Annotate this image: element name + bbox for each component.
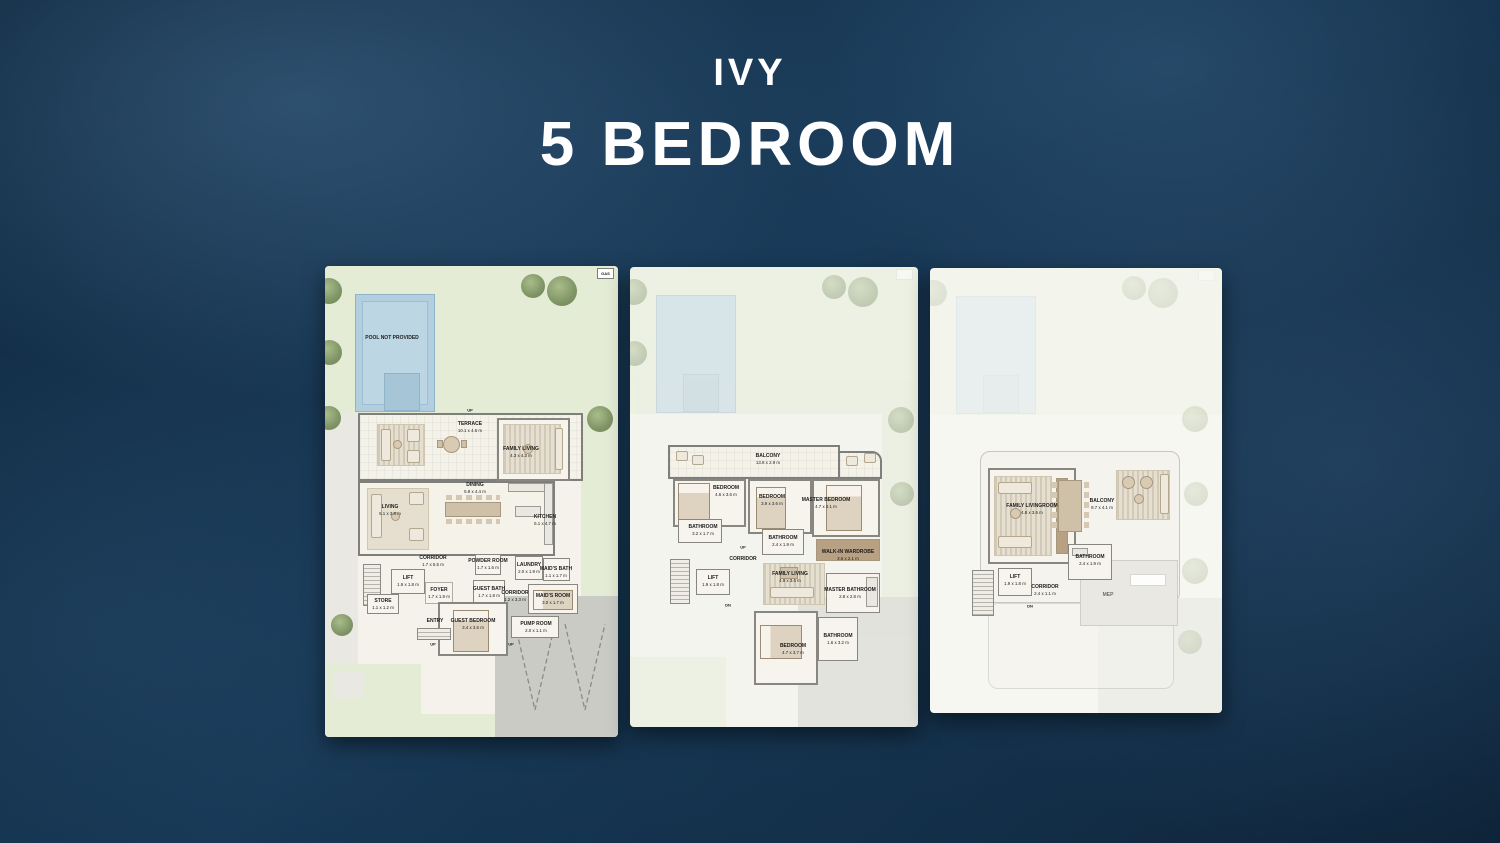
room-label-bedroom4: BEDROOM4.7 x 3.7 m	[780, 643, 806, 655]
room-label-balcony: BALCONY8.7 x 4.1 m	[1090, 498, 1115, 510]
roof-hatch	[1130, 574, 1166, 586]
room-label-maids-room: MAID'S ROOM3.0 x 1.7 m	[536, 593, 570, 605]
room-label-maids-bath: MAID'S BATH1.1 x 1.7 m	[540, 566, 572, 578]
dining-chairs-icon	[1084, 482, 1089, 530]
swimming-pool	[656, 295, 736, 413]
coffee-table-icon	[1134, 494, 1144, 504]
room-label-corridor: CORRIDOR2.4 x 1.1 m	[1031, 584, 1058, 596]
dining-chairs-icon	[446, 495, 500, 500]
gas-meter-box: GAS	[597, 268, 614, 279]
first-floor-plan: BALCONY13.8 x 2.9 m BEDROOM4.6 x 3.6 m B…	[630, 267, 918, 727]
terrace-table-icon	[443, 436, 460, 453]
tree-icon	[822, 275, 846, 299]
pool-steps	[983, 375, 1019, 413]
coffee-table-icon	[393, 440, 402, 449]
staircase	[972, 570, 994, 616]
sofa-icon	[998, 536, 1032, 548]
room-label-bathroom4: BATHROOM1.6 x 3.2 m	[823, 633, 852, 645]
tree-icon	[888, 407, 914, 433]
header: IVY 5 BEDROOM	[0, 0, 1500, 180]
room-label-powder-room: POWDER ROOM1.7 x 1.6 m	[468, 558, 507, 570]
project-title: IVY	[0, 52, 1500, 95]
room-label-corridor: CORRIDOR1.7 x 5.5 m	[419, 555, 446, 567]
room-label-mep: MEP	[1103, 592, 1114, 599]
entry-steps	[417, 628, 451, 640]
tree-icon	[1148, 278, 1178, 308]
sofa-icon	[770, 587, 814, 598]
room-label-walkin-wardrobe: WALK-IN WARDROBE3.6 x 2.1 m	[822, 549, 875, 561]
roof-floor-plan: FAMILY LIVINGROOM4.8 x 3.6 m BALCONY8.7 …	[930, 268, 1222, 713]
room-label-bathroom3: BATHROOM2.4 x 1.9 m	[768, 535, 797, 547]
room-label-lift: LIFT1.9 x 1.8 m	[702, 575, 724, 587]
gas-meter-box	[1198, 270, 1215, 281]
room-label-family-living: FAMILY LIVING4.9 x 3.6 m	[772, 571, 808, 583]
dn-marker: DN	[1027, 603, 1033, 608]
room-label-store: STORE1.1 x 1.2 m	[372, 598, 394, 610]
room-label-kitchen: KITCHEN5.1 x 4.7 m	[534, 514, 556, 526]
outdoor-sofa-icon	[381, 429, 391, 461]
garden-front-strip	[421, 714, 497, 737]
dining-table-icon	[1058, 480, 1082, 532]
garden-side-strip	[882, 414, 918, 599]
swimming-pool	[355, 294, 435, 412]
ground-floor-plan: POOL NOT PROVIDED GAS	[325, 266, 618, 737]
dining-chairs-icon	[446, 519, 500, 524]
paving-slab	[333, 672, 363, 698]
balcony-chair-icon	[676, 451, 688, 461]
pool-steps	[683, 374, 719, 412]
pool-steps	[384, 373, 420, 411]
room-label-terrace: TERRACE10.1 x 4.5 m	[458, 421, 482, 433]
bed-icon	[453, 610, 489, 652]
garden-front-left	[630, 657, 726, 727]
lounge-chair-icon	[1140, 476, 1153, 489]
tree-icon	[521, 274, 545, 298]
bed-icon	[678, 483, 710, 523]
up-marker: UP	[467, 407, 473, 412]
room-label-master-bathroom: MASTER BATHROOM2.8 x 2.8 m	[824, 587, 876, 599]
up-marker: UP	[740, 544, 746, 549]
tree-icon	[890, 482, 914, 506]
swimming-pool	[956, 296, 1036, 414]
room-label-family-livingroom: FAMILY LIVINGROOM4.8 x 3.6 m	[1006, 503, 1057, 515]
room-label-entry: ENTRY	[427, 618, 444, 625]
outdoor-chair-icon	[407, 450, 420, 463]
balcony-chair-icon	[864, 453, 876, 463]
tree-icon	[1122, 276, 1146, 300]
room-label-lift: LIFT1.9 x 1.8 m	[397, 575, 419, 587]
room-label-pump-room: PUMP ROOM2.0 x 1.1 m	[520, 621, 551, 633]
dining-table-icon	[445, 502, 501, 517]
gas-meter-box	[896, 269, 913, 280]
room-label-laundry: LAUNDRY2.0 x 1.9 m	[517, 562, 541, 574]
staircase	[670, 559, 690, 604]
dn-marker: DN	[725, 602, 731, 607]
balcony-chair-icon	[846, 456, 858, 466]
tree-icon	[587, 406, 613, 432]
room-label-bedroom2: BEDROOM4.6 x 3.6 m	[713, 485, 739, 497]
armchair-icon	[409, 528, 424, 541]
room-label-foyer: FOYER1.7 x 1.9 m	[428, 587, 450, 599]
room-label-guest-bath: GUEST BATH1.7 x 1.8 m	[473, 586, 505, 598]
tree-icon	[1184, 482, 1208, 506]
brochure-slide: IVY 5 BEDROOM POOL NOT PROVIDED	[0, 0, 1500, 843]
pool-label: POOL NOT PROVIDED	[365, 335, 419, 342]
room-label-corridor: CORRIDOR	[729, 556, 756, 563]
sofa-icon	[998, 482, 1032, 494]
room-label-lift: LIFT1.9 x 1.8 m	[1004, 574, 1026, 586]
room-label-dining: DINING5.9 x 4.4 m	[464, 482, 486, 494]
unit-type-title: 5 BEDROOM	[0, 109, 1500, 180]
chair-icon	[461, 440, 467, 448]
garden-side-strip	[581, 413, 618, 601]
room-label-bedroom3: BEDROOM3.9 x 3.6 m	[759, 494, 785, 506]
balcony-chair-icon	[692, 455, 704, 465]
room-label-bathroom2: BATHROOM3.2 x 1.7 m	[688, 524, 717, 536]
room-label-guest-bedroom: GUEST BEDROOM3.4 x 3.6 m	[451, 618, 496, 630]
room-label-balcony: BALCONY13.8 x 2.9 m	[756, 453, 781, 465]
lounge-chair-icon	[1122, 476, 1135, 489]
room-label-master-bedroom: MASTER BEDROOM4.7 x 4.1 m	[802, 497, 851, 509]
sofa-icon	[1160, 474, 1169, 514]
armchair-icon	[409, 492, 424, 505]
tree-icon	[1178, 630, 1202, 654]
room-label-corridor2: CORRIDOR1.2 x 3.3 m	[501, 590, 528, 602]
sofa-icon	[555, 428, 563, 470]
room-label-bathroom: BATHROOM2.4 x 1.9 m	[1075, 554, 1104, 566]
tree-icon	[331, 614, 353, 636]
tree-icon	[1182, 558, 1208, 584]
outdoor-chair-icon	[407, 429, 420, 442]
room-label-family-living: FAMILY LIVING4.3 x 4.3 m	[503, 446, 539, 458]
up-marker: UP	[508, 641, 514, 646]
tree-icon	[848, 277, 878, 307]
up-marker: UP	[430, 641, 436, 646]
chair-icon	[437, 440, 443, 448]
tree-icon	[1182, 406, 1208, 432]
room-label-living: LIVING5.1 x 3.8 m	[379, 504, 401, 516]
tree-icon	[547, 276, 577, 306]
